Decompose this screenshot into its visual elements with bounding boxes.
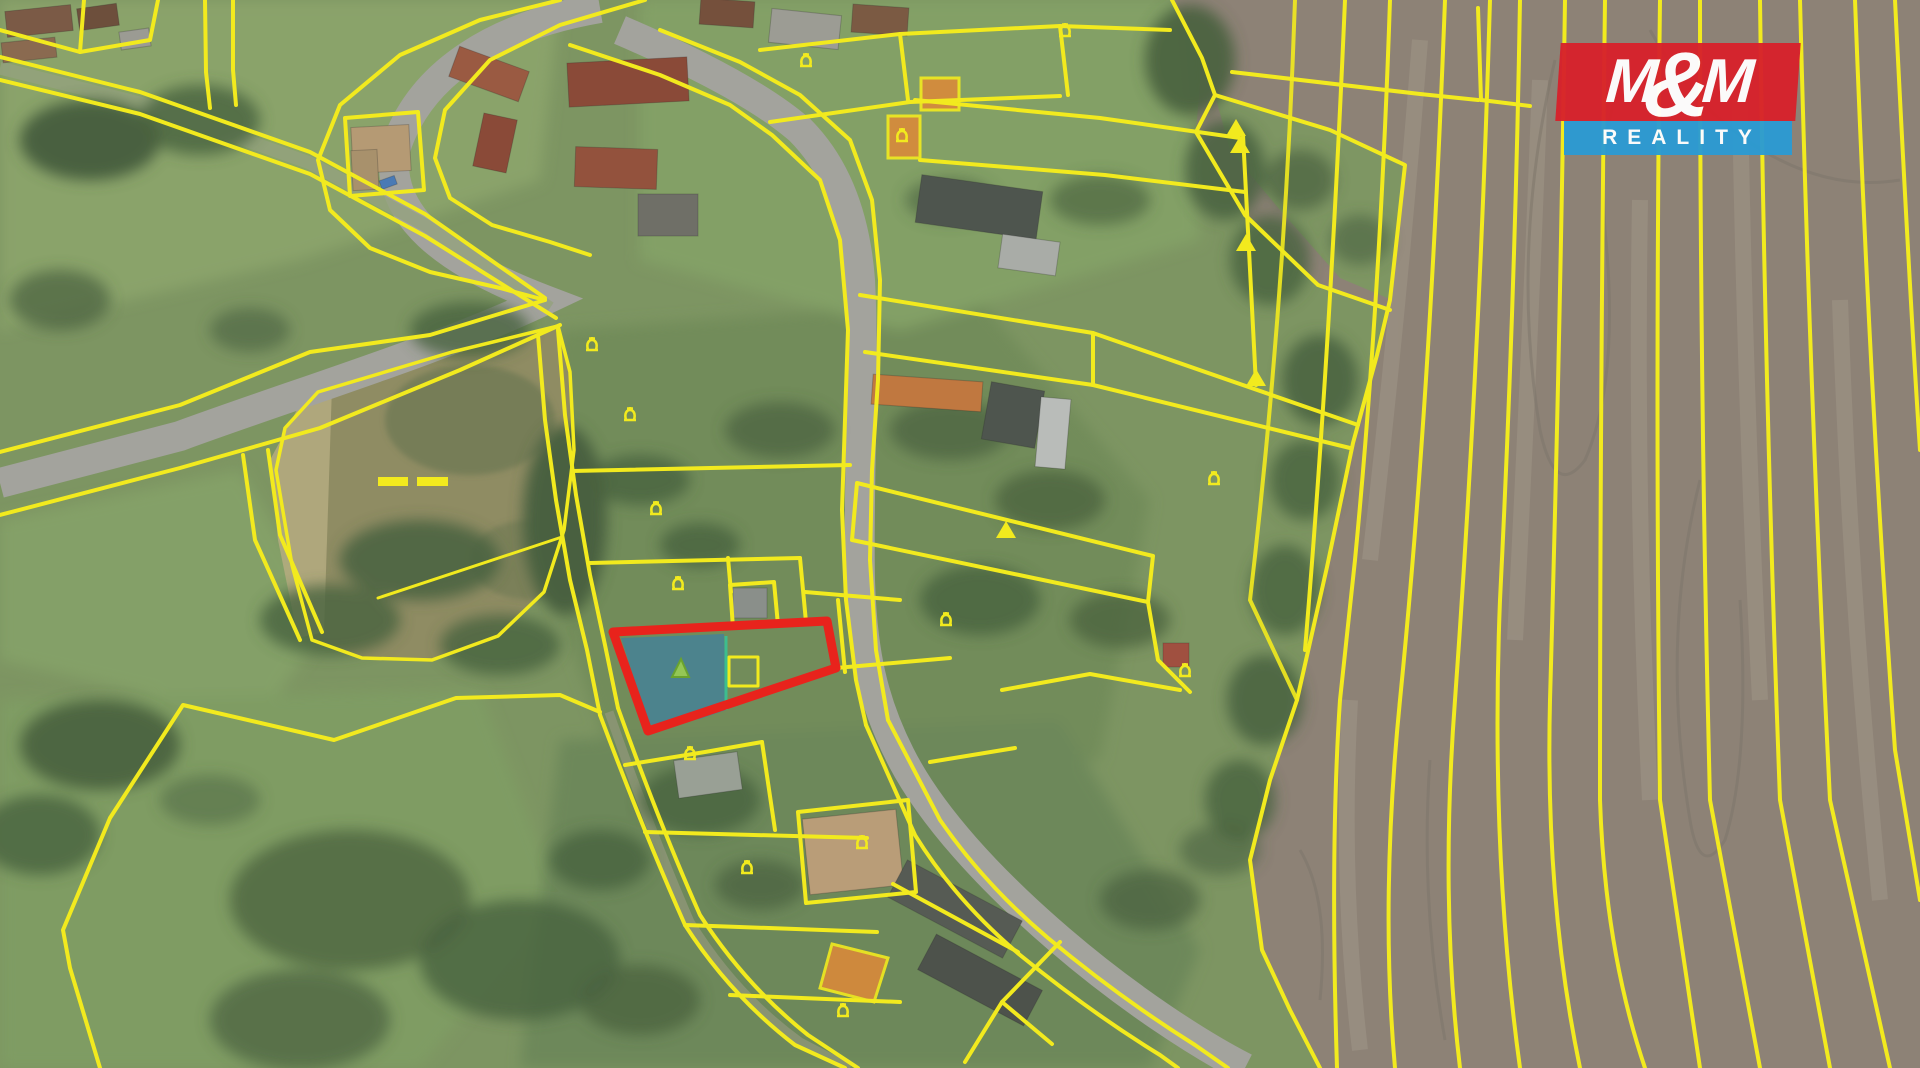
aerial-cadastral-map: M & M REALITY: [0, 0, 1920, 1068]
map-canvas: [0, 0, 1920, 1068]
logo-mm-block: M & M: [1555, 43, 1800, 121]
logo-ampersand: &: [1641, 39, 1714, 131]
mm-reality-logo: M & M REALITY: [1558, 43, 1798, 155]
